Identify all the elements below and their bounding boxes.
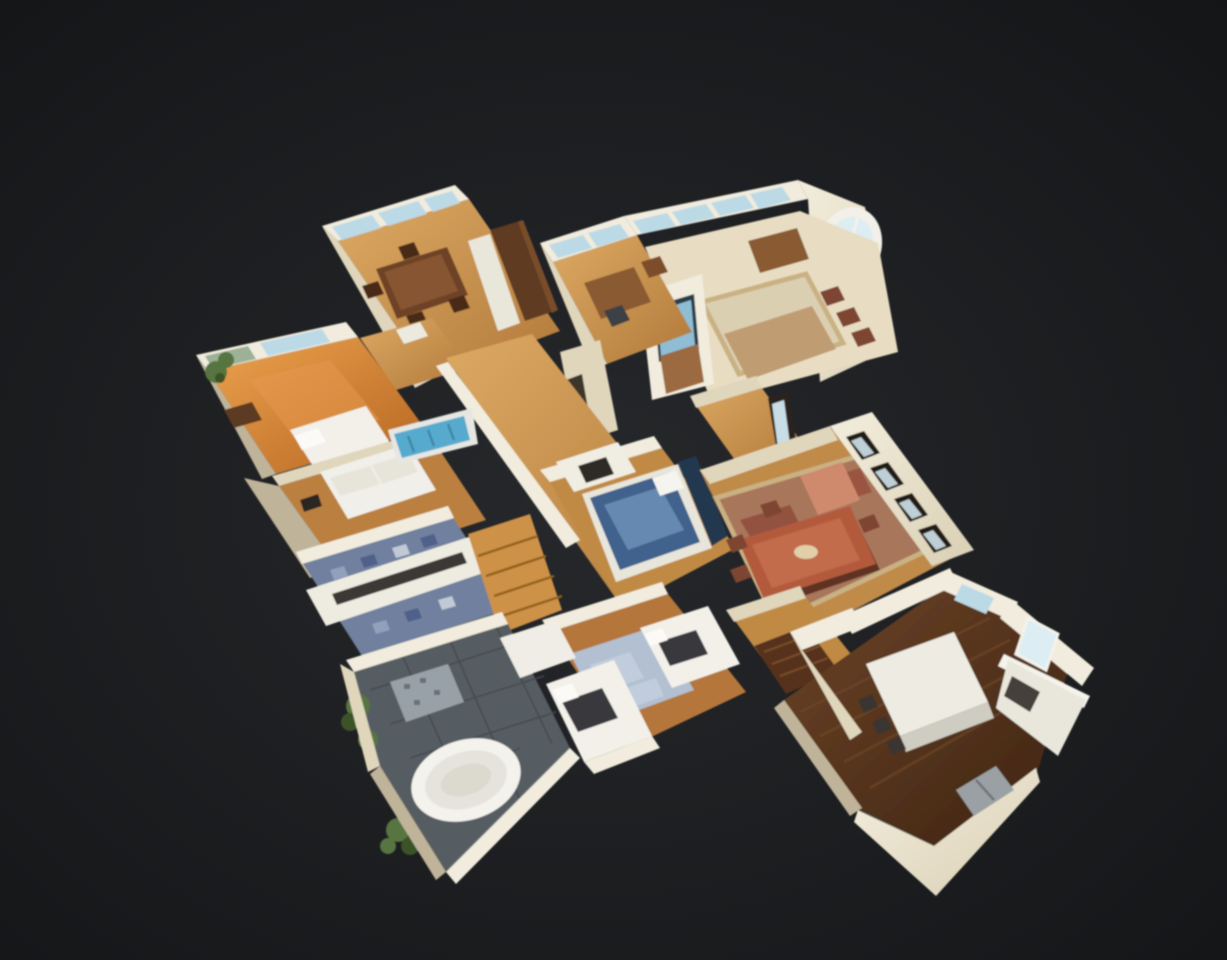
dollhouse-viewport[interactable] <box>0 0 1227 960</box>
houseplant <box>215 373 225 383</box>
centerpiece <box>794 545 818 559</box>
viewer-stage <box>0 0 1227 960</box>
houseplant <box>218 352 234 368</box>
